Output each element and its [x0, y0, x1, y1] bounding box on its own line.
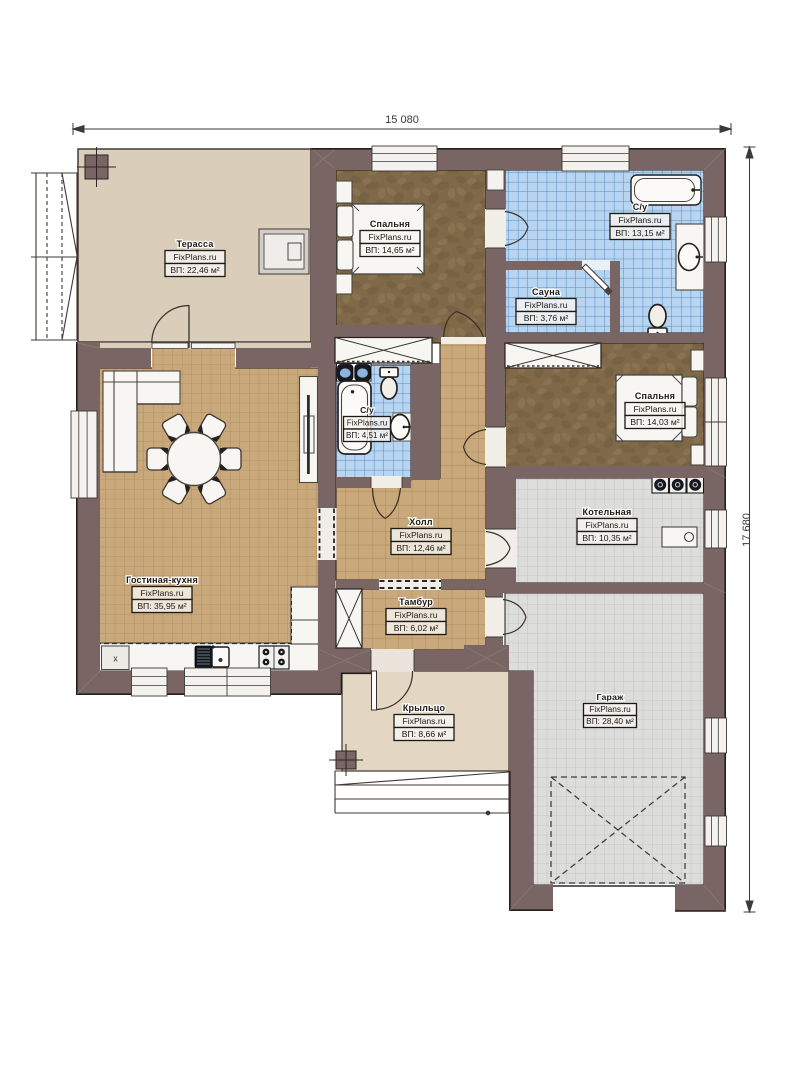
svg-text:FixPlans.ru: FixPlans.ru — [174, 252, 217, 262]
svg-text:FixPlans.ru: FixPlans.ru — [141, 588, 184, 598]
svg-text:ВП: 22,46 м²: ВП: 22,46 м² — [170, 265, 219, 275]
svg-text:ВП: 6,02 м²: ВП: 6,02 м² — [394, 623, 439, 633]
svg-text:С/у: С/у — [360, 405, 374, 415]
svg-text:ВП: 14,65 м²: ВП: 14,65 м² — [365, 245, 414, 255]
svg-text:ВП: 28,40 м²: ВП: 28,40 м² — [586, 716, 634, 726]
svg-text:ВП: 4,51 м²: ВП: 4,51 м² — [346, 431, 388, 440]
svg-text:FixPlans.ru: FixPlans.ru — [589, 704, 631, 714]
svg-text:Котельная: Котельная — [583, 507, 632, 517]
svg-text:FixPlans.ru: FixPlans.ru — [634, 404, 677, 414]
svg-text:Гараж: Гараж — [597, 692, 625, 702]
svg-text:С/у: С/у — [633, 202, 648, 212]
svg-text:x: x — [113, 654, 118, 664]
svg-text:FixPlans.ru: FixPlans.ru — [395, 610, 438, 620]
svg-text:Тамбур: Тамбур — [399, 597, 433, 607]
svg-text:Терасса: Терасса — [176, 239, 214, 249]
svg-text:FixPlans.ru: FixPlans.ru — [403, 716, 446, 726]
svg-text:Сауна: Сауна — [532, 287, 561, 297]
svg-text:17 680: 17 680 — [741, 513, 753, 547]
svg-text:FixPlans.ru: FixPlans.ru — [525, 300, 568, 310]
svg-text:ВП: 13,15 м²: ВП: 13,15 м² — [615, 228, 664, 238]
svg-text:Холл: Холл — [409, 517, 432, 527]
svg-text:Гостиная-кухня: Гостиная-кухня — [126, 575, 198, 585]
svg-text:ВП: 12,46 м²: ВП: 12,46 м² — [396, 543, 445, 553]
svg-text:FixPlans.ru: FixPlans.ru — [400, 530, 443, 540]
svg-text:ВП: 10,35 м²: ВП: 10,35 м² — [582, 533, 631, 543]
svg-text:ВП: 8,66 м²: ВП: 8,66 м² — [402, 729, 447, 739]
svg-text:ВП: 35,95 м²: ВП: 35,95 м² — [137, 601, 186, 611]
svg-text:FixPlans.ru: FixPlans.ru — [586, 520, 629, 530]
svg-text:FixPlans.ru: FixPlans.ru — [619, 215, 662, 225]
svg-text:FixPlans.ru: FixPlans.ru — [347, 419, 387, 428]
svg-text:Спальня: Спальня — [370, 219, 410, 229]
svg-text:Крыльцо: Крыльцо — [403, 703, 446, 713]
svg-text:FixPlans.ru: FixPlans.ru — [369, 232, 412, 242]
svg-text:15 080: 15 080 — [385, 114, 419, 126]
svg-text:Спальня: Спальня — [635, 391, 675, 401]
svg-text:ВП: 14,03 м²: ВП: 14,03 м² — [630, 417, 679, 427]
svg-text:ВП: 3,76 м²: ВП: 3,76 м² — [524, 313, 569, 323]
